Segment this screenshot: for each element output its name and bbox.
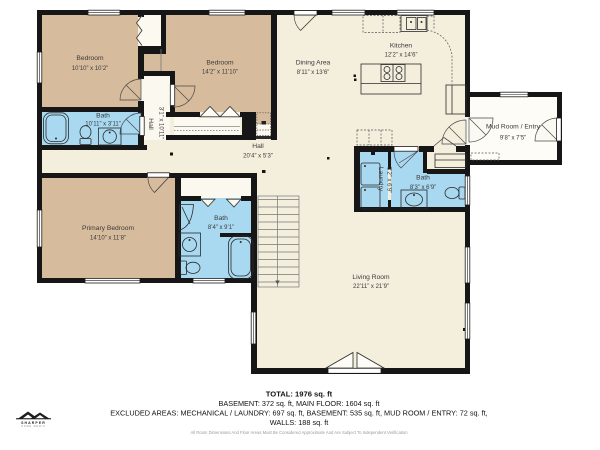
svg-text:SHARPER: SHARPER — [21, 421, 46, 425]
svg-text:10’10” x 10’2”: 10’10” x 10’2” — [72, 66, 108, 72]
svg-text:8’11” x 13’6”: 8’11” x 13’6” — [297, 70, 330, 76]
svg-text:Mud Room / Entry: Mud Room / Entry — [486, 124, 541, 131]
svg-text:BASEMENT: 372 sq. ft, MAIN FLO: BASEMENT: 372 sq. ft, MAIN FLOOR: 1604 s… — [219, 399, 380, 408]
svg-text:3’2” x 6’9”: 3’2” x 6’9” — [386, 167, 392, 193]
svg-text:3’1” x 10’11”: 3’1” x 10’11” — [158, 107, 164, 140]
svg-text:14’10” x 11’8”: 14’10” x 11’8” — [90, 236, 126, 242]
svg-text:WALLS: 188 sq. ft: WALLS: 188 sq. ft — [270, 418, 329, 427]
svg-text:Hall: Hall — [147, 118, 154, 130]
svg-text:9’8” x 7’5”: 9’8” x 7’5” — [500, 136, 526, 142]
svg-text:14’2” x 11’10”: 14’2” x 11’10” — [202, 70, 238, 76]
svg-text:EXCLUDED AREAS: MECHANICAL / L: EXCLUDED AREAS: MECHANICAL / LAUNDRY: 69… — [110, 409, 487, 418]
svg-text:Laundry: Laundry — [377, 167, 384, 192]
svg-text:Bath: Bath — [214, 215, 228, 222]
svg-text:HOME MEDIA: HOME MEDIA — [21, 425, 45, 428]
svg-text:TOTAL: 1976 sq. ft: TOTAL: 1976 sq. ft — [266, 390, 333, 399]
svg-text:Bedroom: Bedroom — [76, 55, 104, 62]
svg-text:22’11” x 21’9”: 22’11” x 21’9” — [353, 284, 389, 290]
svg-text:8’4” x 9’1”: 8’4” x 9’1” — [208, 225, 234, 231]
svg-text:Kitchen: Kitchen — [390, 43, 413, 50]
svg-text:Dining Area: Dining Area — [296, 60, 331, 67]
svg-text:10’11” x 3’11”: 10’11” x 3’11” — [85, 122, 120, 128]
svg-text:Bedroom: Bedroom — [206, 60, 234, 67]
svg-text:12’2” x 14’6”: 12’2” x 14’6” — [384, 53, 417, 59]
svg-text:Hall: Hall — [252, 143, 264, 150]
svg-text:Bath: Bath — [96, 113, 110, 120]
svg-text:Primary Bedroom: Primary Bedroom — [82, 225, 134, 232]
svg-text:All Room Dimensions And Floor: All Room Dimensions And Floor Areas Must… — [190, 430, 408, 435]
svg-text:20’4” x 5’3”: 20’4” x 5’3” — [243, 154, 273, 160]
svg-text:8’3” x 6’9”: 8’3” x 6’9” — [410, 185, 436, 191]
svg-text:Bath: Bath — [416, 175, 430, 182]
svg-text:Living Room: Living Room — [352, 274, 390, 281]
